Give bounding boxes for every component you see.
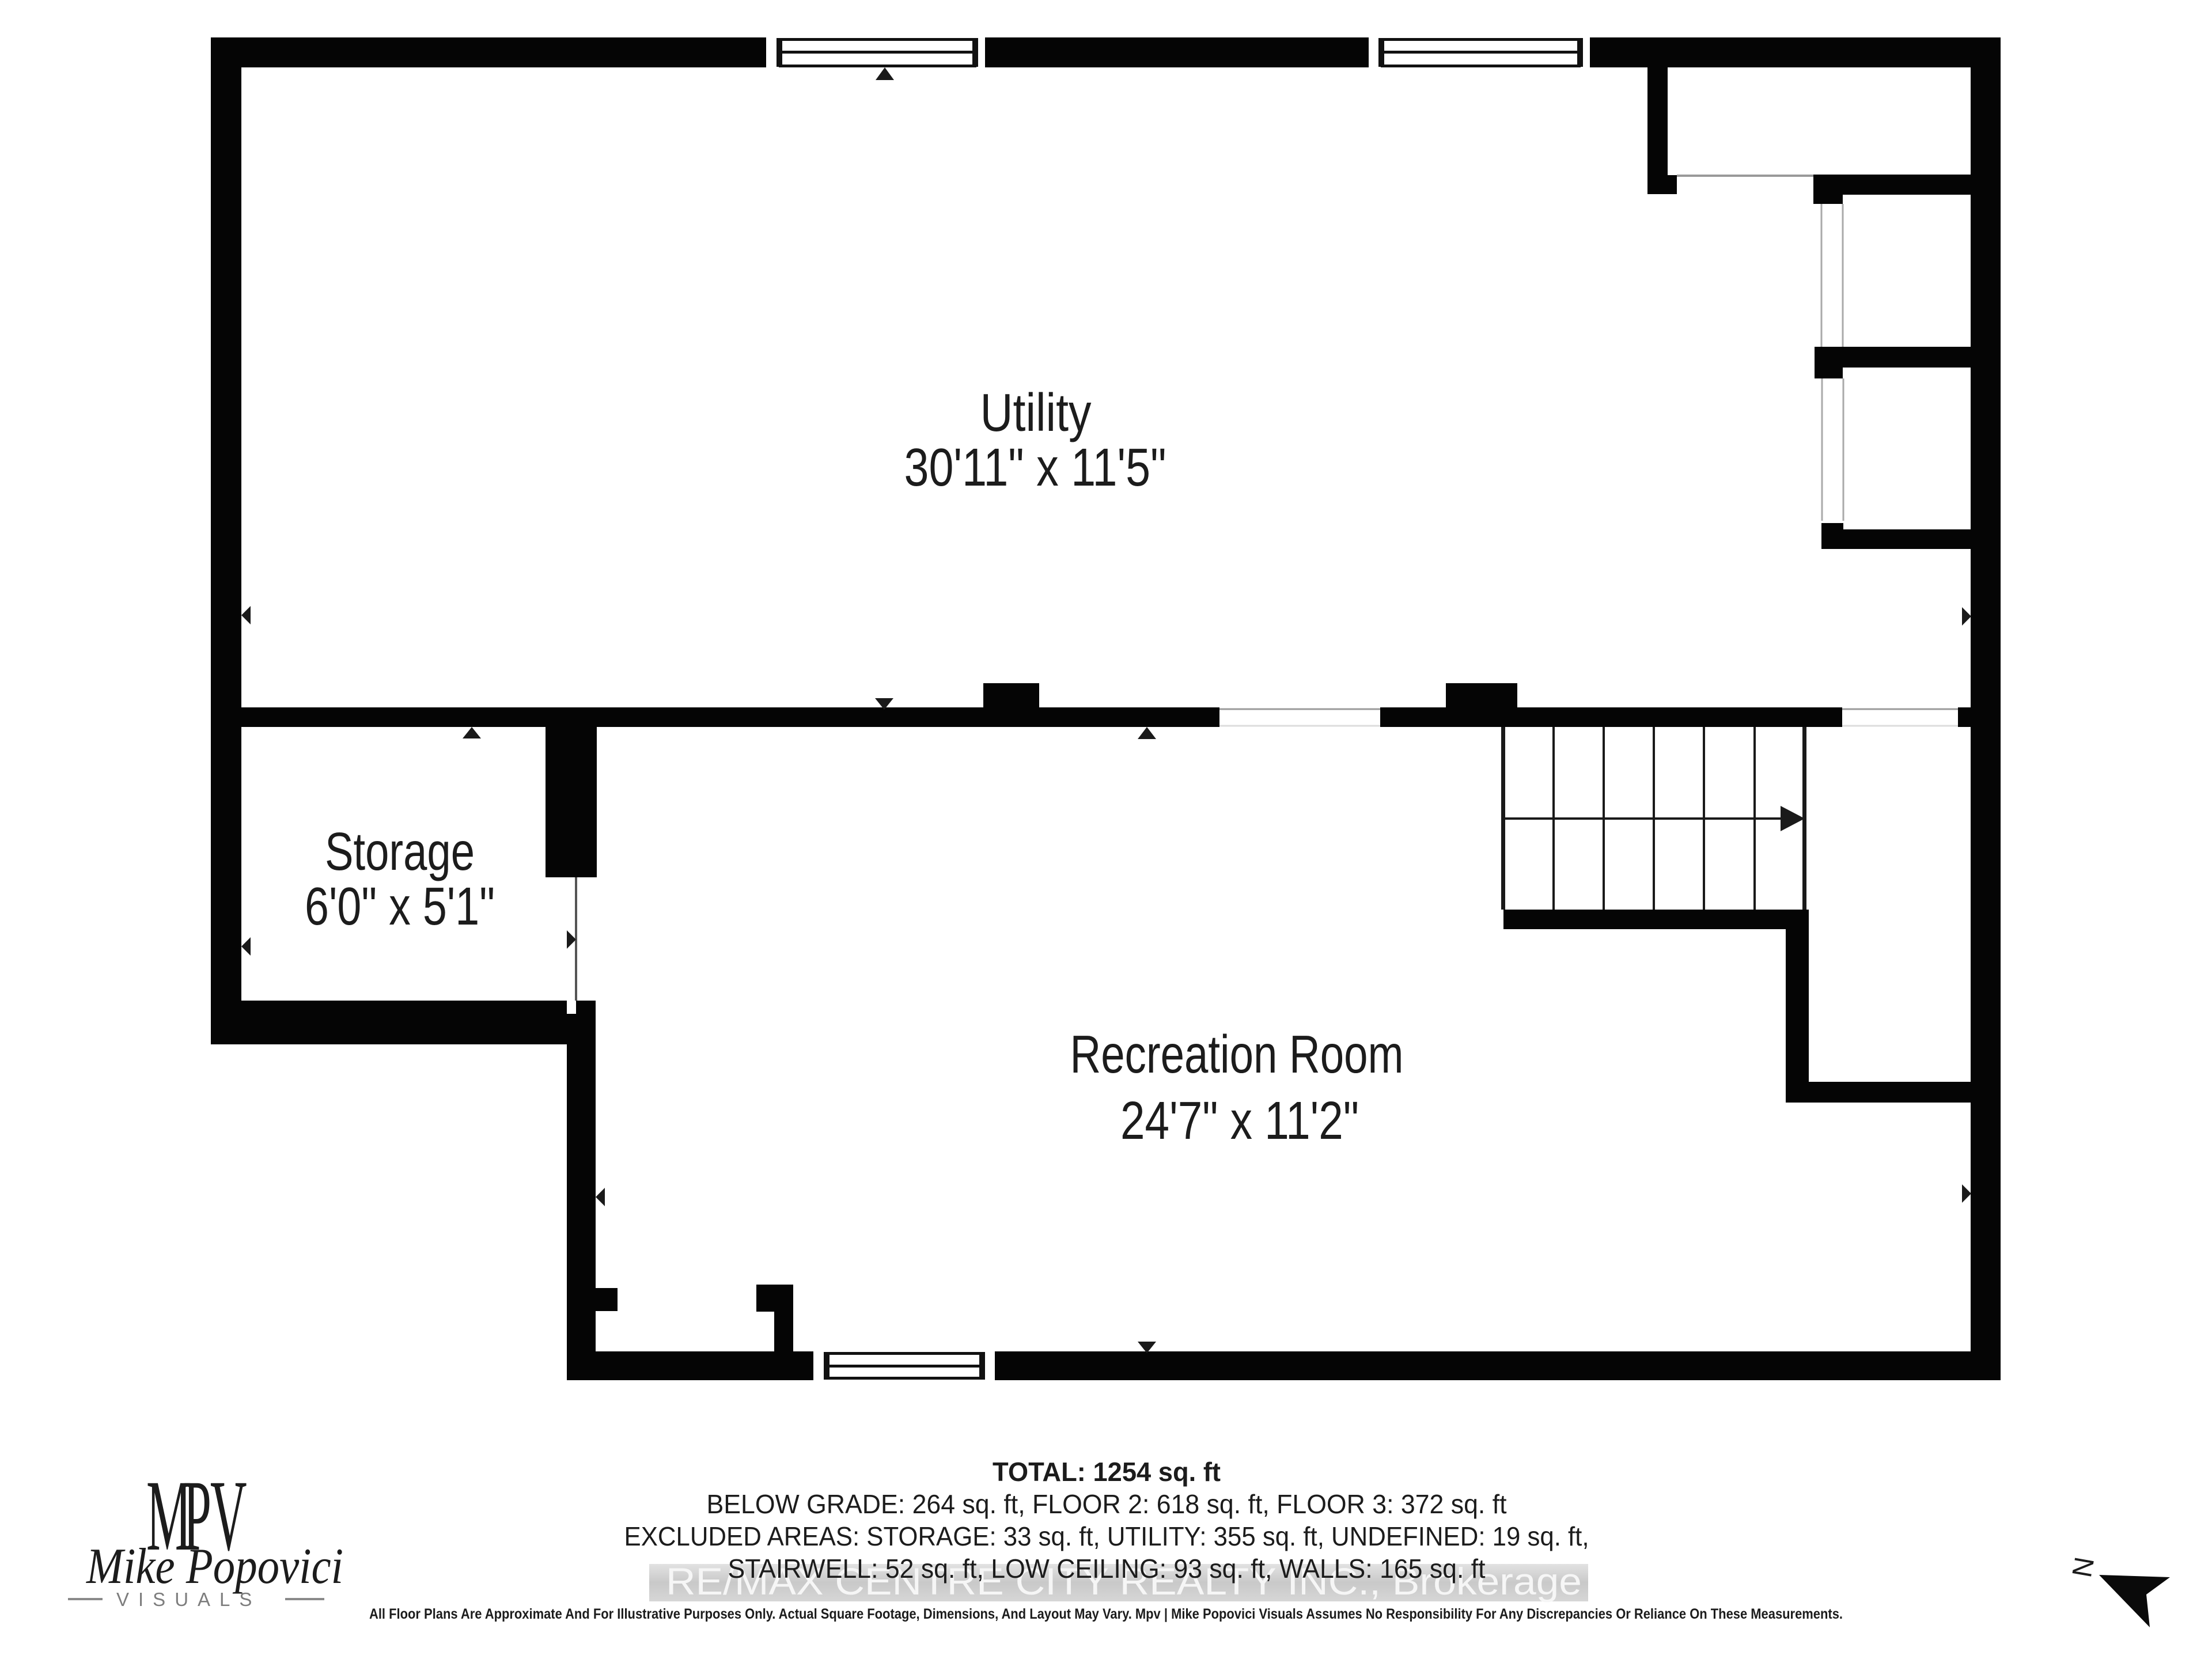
svg-text:TOTAL: 1254 sq. ft: TOTAL: 1254 sq. ft	[993, 1457, 1221, 1487]
svg-text:EXCLUDED AREAS: STORAGE: 33 sq: EXCLUDED AREAS: STORAGE: 33 sq. ft, UTIL…	[624, 1521, 1589, 1551]
svg-text:Recreation Room: Recreation Room	[1070, 1024, 1404, 1084]
svg-text:6'0" x 5'1": 6'0" x 5'1"	[305, 876, 495, 936]
svg-text:VISUALS: VISUALS	[116, 1589, 261, 1610]
svg-text:24'7" x 11'2": 24'7" x 11'2"	[1120, 1090, 1359, 1150]
svg-text:Storage: Storage	[325, 821, 475, 881]
svg-text:STAIRWELL: 52 sq. ft, LOW CEIL: STAIRWELL: 52 sq. ft, LOW CEILING: 93 sq…	[728, 1554, 1486, 1584]
svg-text:BELOW GRADE: 264 sq. ft, FLOOR: BELOW GRADE: 264 sq. ft, FLOOR 2: 618 sq…	[707, 1489, 1507, 1519]
svg-text:30'11" x 11'5": 30'11" x 11'5"	[904, 437, 1166, 497]
svg-text:Mike Popovici: Mike Popovici	[85, 1539, 343, 1594]
svg-text:All Floor Plans Are Approximat: All Floor Plans Are Approximate And For …	[369, 1606, 1843, 1622]
svg-text:Utility: Utility	[980, 382, 1092, 442]
